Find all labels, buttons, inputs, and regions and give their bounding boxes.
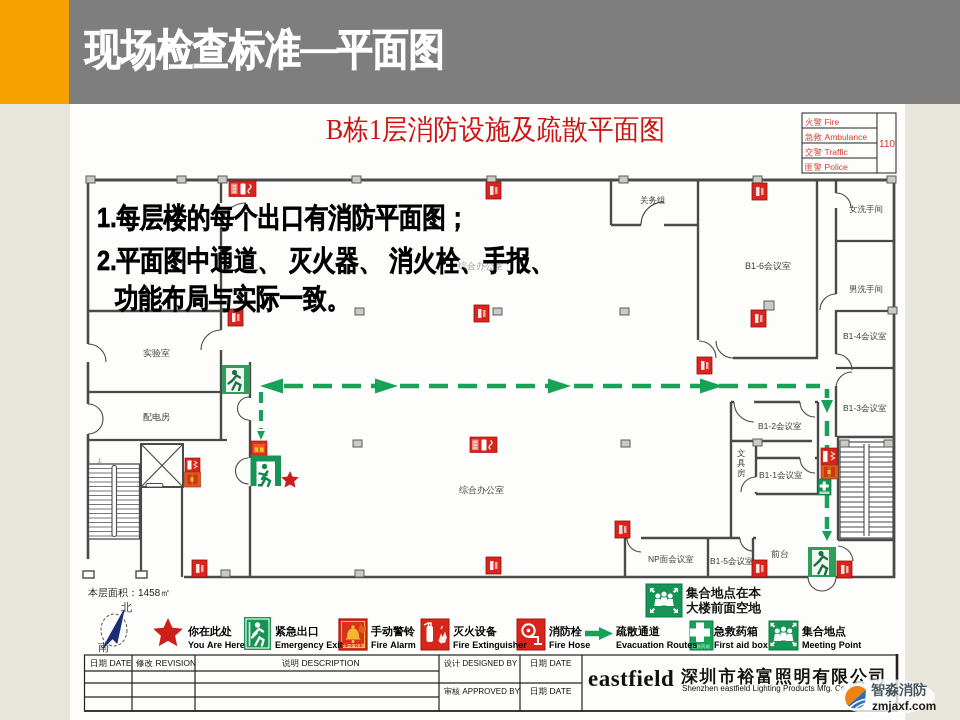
svg-text:说明 DESCRIPTION: 说明 DESCRIPTION (282, 658, 360, 669)
svg-text:日期 DATE: 日期 DATE (530, 658, 572, 669)
svg-text:修改 REVISION: 修改 REVISION (135, 658, 196, 669)
svg-text:智淼消防: 智淼消防 (870, 682, 927, 700)
svg-text:zmjaxf.com: zmjaxf.com (872, 699, 936, 713)
svg-text:日期 DATE: 日期 DATE (530, 686, 572, 697)
svg-text:日期 DATE: 日期 DATE (90, 658, 132, 669)
svg-text:审核 APPROVED BY: 审核 APPROVED BY (444, 687, 521, 697)
svg-text:设计 DESIGNED BY: 设计 DESIGNED BY (444, 659, 518, 669)
